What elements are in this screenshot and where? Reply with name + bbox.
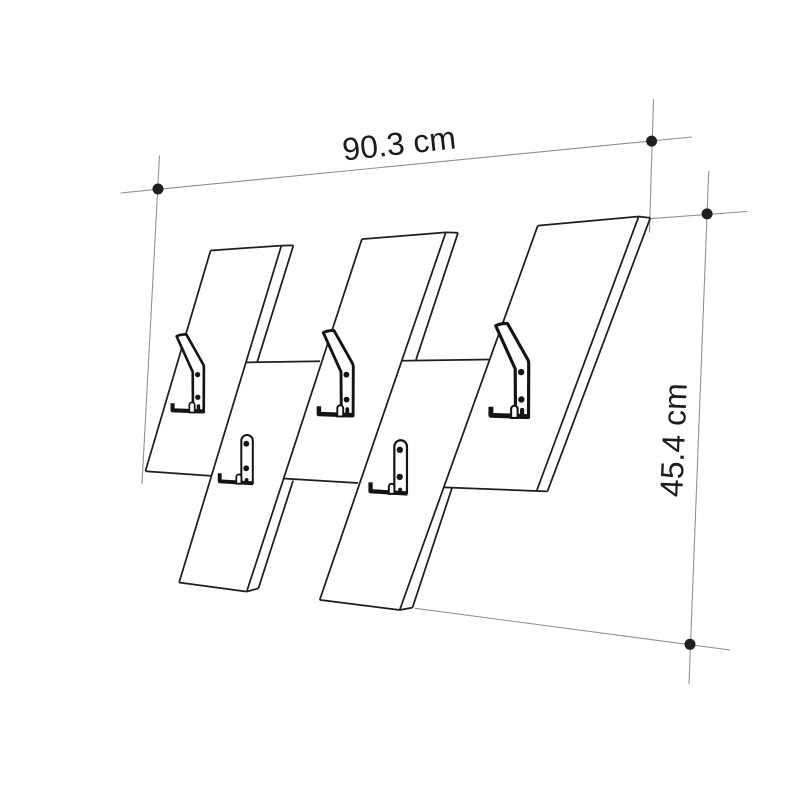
svg-text:90.3 cm: 90.3 cm — [341, 119, 458, 167]
svg-text:45.4 cm: 45.4 cm — [653, 382, 694, 497]
